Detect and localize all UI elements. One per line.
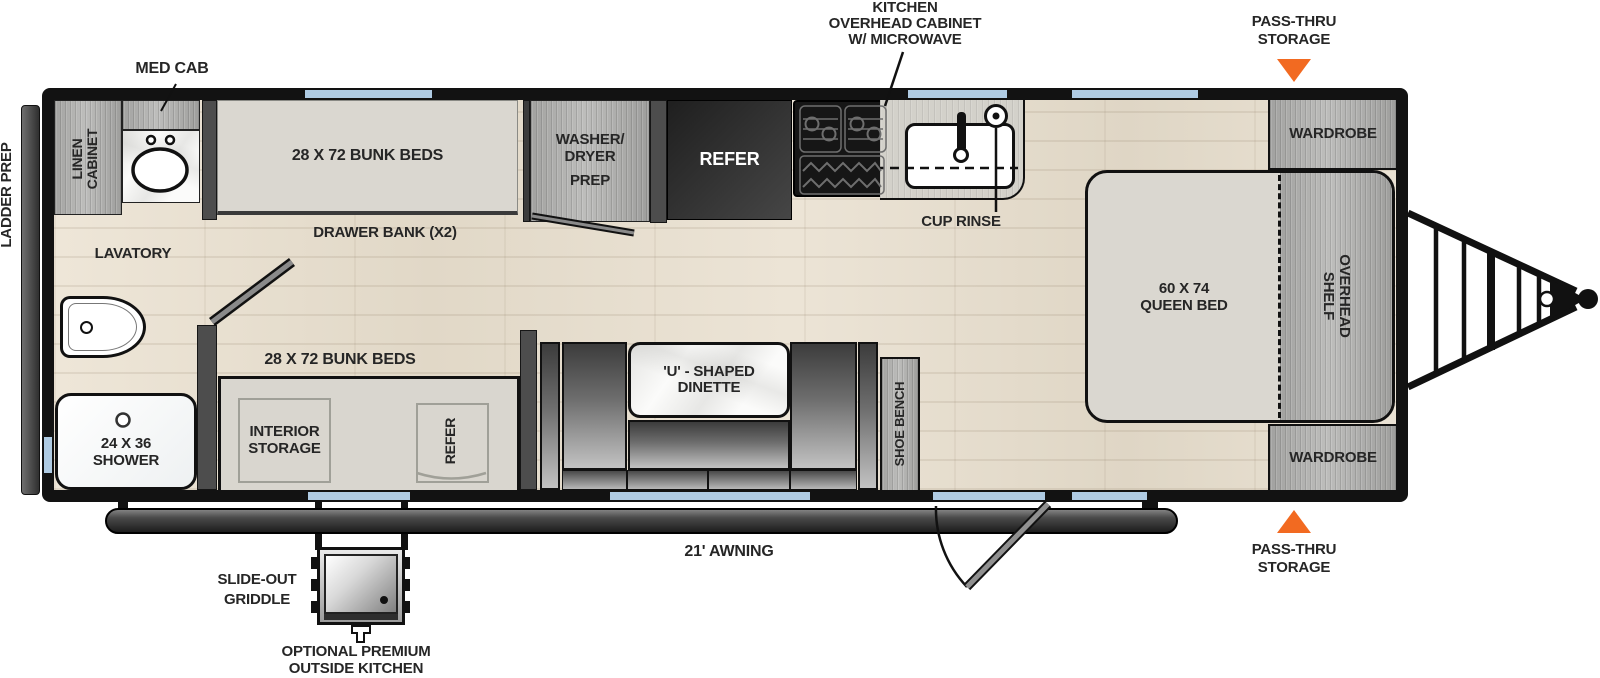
rear-bumper [21,105,40,495]
wall-bunk-wd [523,100,530,222]
wardrobe-top-label: WARDROBE [1289,126,1377,143]
interior-storage-label: INTERIORSTORAGE [248,424,321,457]
lavatory-label: LAVATORY [63,246,203,263]
window-bottom-2 [610,492,810,500]
tongue-jack [1540,292,1554,306]
toilet [60,296,146,358]
shower-label: 24 X 36SHOWER [58,436,194,469]
wall-bath-kitchen [202,100,217,220]
window-bottom-1 [308,492,410,500]
pass-thru-top-arrow-icon [1277,59,1311,82]
dinette-cushion-2 [627,470,708,490]
cooktop-stove [793,100,890,197]
med-cab-label: MED CAB [112,60,232,78]
toilet-inner-rim [68,303,137,351]
dinette-table: 'U' - SHAPEDDINETTE [628,342,790,418]
floorplan-canvas: LINENCABINET 24 X 36SHOWER LAVATORY 28 X… [0,0,1600,678]
window-top-3 [1072,90,1198,98]
pass-thru-top-label: PASS-THRUSTORAGE [1224,13,1364,48]
dinette-cushion-3 [708,470,790,490]
griddle-front-rail [324,614,398,620]
washer-dryer-prep: WASHER/DRYER PREP [530,100,650,222]
bunk-beds-top: 28 X 72 BUNK BEDS [217,100,518,215]
queen-bed-label: 60 X 74QUEEN BED [1088,281,1280,314]
medicine-cabinet [122,100,200,130]
wall-bunkbottom-dinette [520,330,537,490]
tongue-frame [1408,213,1598,387]
awning-label: 21' AWNING [649,543,809,561]
interior-storage-box: INTERIORSTORAGE [238,398,331,483]
dinette-bench-middle [628,420,790,470]
pass-thru-bottom-label: PASS-THRUSTORAGE [1224,541,1364,576]
bunk-beds-top-label: 28 X 72 BUNK BEDS [292,147,443,165]
refrigerator: REFER [667,100,792,220]
kitchen-sink [905,123,1015,189]
window-bottom-3 [933,492,1045,500]
ladder-prep-label: LADDER PREP [0,130,17,260]
wardrobe-top: WARDROBE [1268,100,1396,170]
outside-kitchen-label: OPTIONAL PREMIUMOUTSIDE KITCHEN [256,644,456,678]
dinette-table-label: 'U' - SHAPEDDINETTE [663,364,754,397]
bath-sink-counter [122,130,200,203]
wall-bath-lower [197,325,217,490]
shower-pan: 24 X 36SHOWER [55,393,197,490]
bunk-beds-bottom-label: 28 X 72 BUNK BEDS [190,351,490,369]
awning-roller [105,508,1178,534]
linen-cabinet-label: LINENCABINET [48,104,122,214]
griddle-handle [352,626,370,642]
overhead-shelf-label: OVERHEADSHELF [1276,236,1396,356]
shoe-bench-label: SHOE BENCH [840,359,960,489]
dinette-bench-left-arm [562,342,627,470]
slide-out-griddle-label: SLIDE-OUTGRIDDLE [177,570,337,611]
window-bottom-4 [1072,492,1147,500]
coupler [1578,289,1598,309]
washer-dryer-label: WASHER/DRYER PREP [556,132,625,190]
refer-bottom-label: REFER [412,401,490,481]
wardrobe-bottom-label: WARDROBE [1289,450,1377,467]
window-top-2 [908,90,1007,98]
wardrobe-bottom: WARDROBE [1268,424,1396,490]
dinette-cushion-1 [562,470,627,490]
window-top-1 [305,90,432,98]
kitchen-overhead-label: KITCHENOVERHEAD CABINETW/ MICROWAVE [810,0,1000,48]
toilet-flush-button [80,321,93,334]
dinette-bench-left-thin [540,342,560,490]
cup-rinse-label: CUP RINSE [891,214,1031,231]
drawer-bank-label: DRAWER BANK (X2) [235,225,535,242]
pass-thru-bottom-arrow-icon [1277,510,1311,533]
refrigerator-label: REFER [699,150,759,170]
griddle-knob [380,596,388,604]
wall-wd-refer [650,100,667,223]
window-left-shower [44,437,52,473]
